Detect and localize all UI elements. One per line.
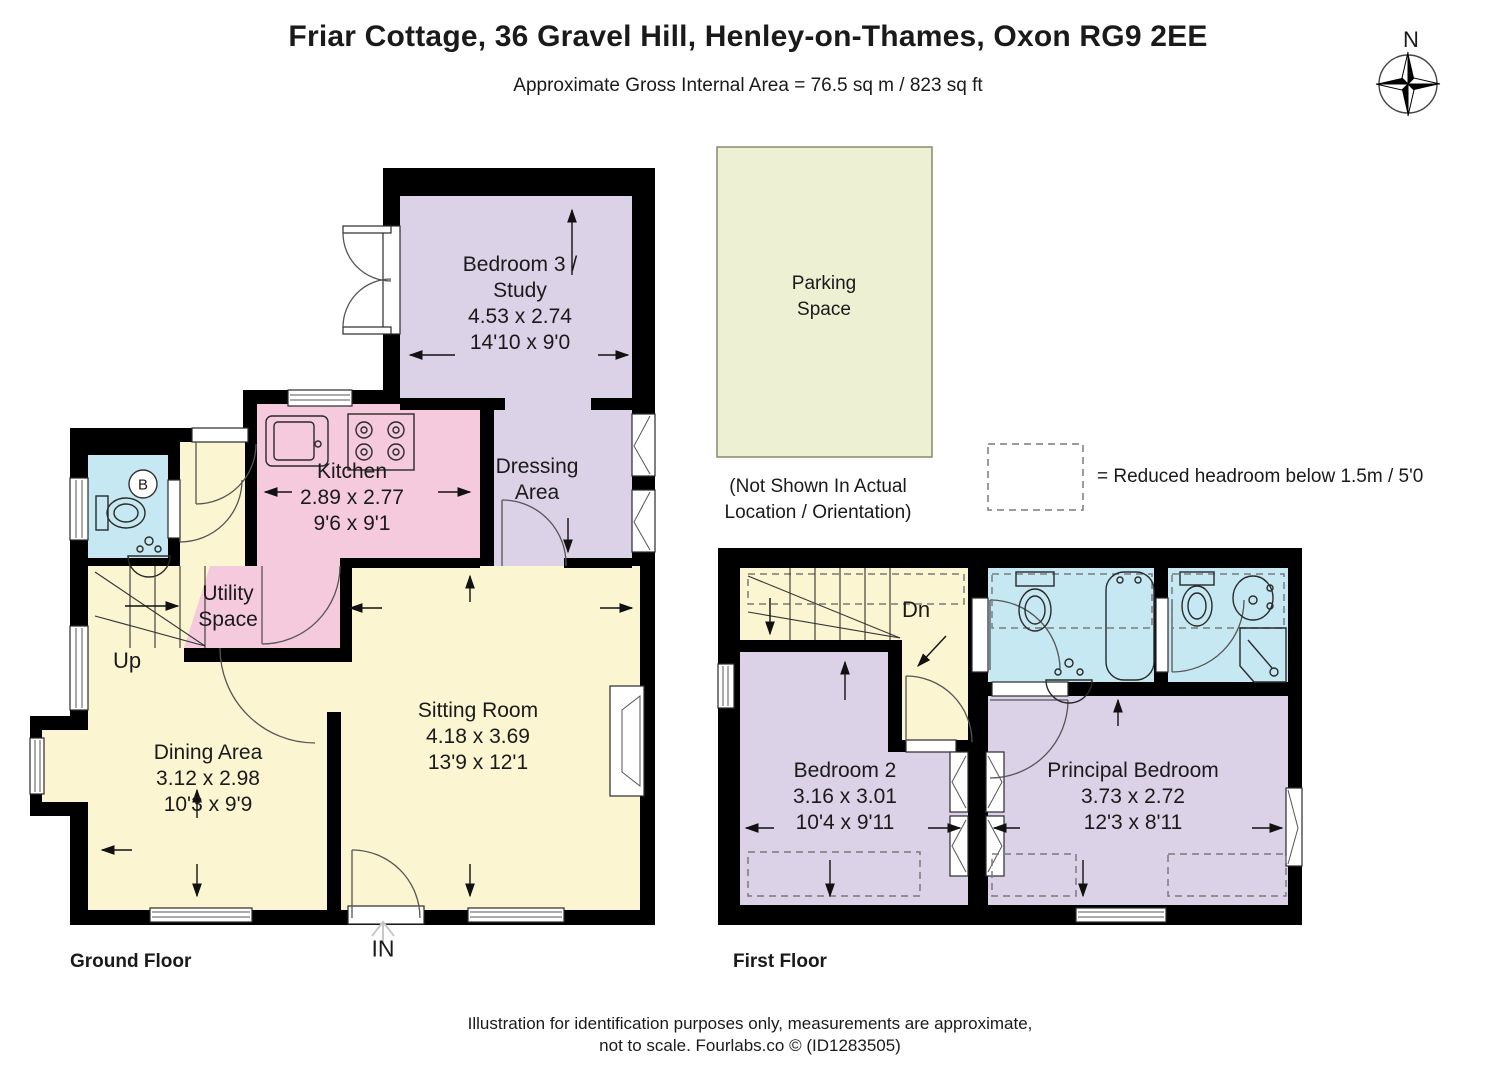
stairs-dn-label: Dn [902,597,930,623]
room-bathroom1 [988,568,1154,682]
principal-window [1076,908,1166,922]
fireplace [610,686,644,796]
entrance-door-gap [348,906,424,924]
room-label-kitchen: Kitchen 2.89 x 2.77 9'6 x 9'1 [300,459,404,537]
footer-disclaimer: Illustration for identification purposes… [468,1013,1033,1057]
dining-window [150,908,252,922]
dressing-window-2 [632,490,655,552]
parking-label: Parking Space [792,271,856,323]
boiler-label: B [138,477,148,494]
room-label-bedroom3: Bedroom 3 / Study 4.53 x 2.74 14'10 x 9'… [463,252,577,356]
room-bathroom-ground [88,455,168,558]
room-label-sitting: Sitting Room 4.18 x 3.69 13'9 x 12'1 [418,698,538,776]
dressing-window-1 [632,414,655,476]
room-label-dressing: Dressing Area [496,454,579,506]
ground-floor-label: Ground Floor [70,951,191,973]
first-left-window [718,664,734,708]
room-bedroom3-dressing-link [505,396,591,416]
floorplan-graphics [0,0,1495,1080]
room-label-principal: Principal Bedroom 3.73 x 2.72 12'3 x 8'1… [1047,758,1219,836]
sitting-window [468,908,564,922]
page-subtitle: Approximate Gross Internal Area = 76.5 s… [513,75,982,97]
legend-label: = Reduced headroom below 1.5m / 5'0 [1097,464,1423,490]
bathroom1-door-gap [972,598,988,672]
front-door-gap [192,428,248,442]
stairs-window [70,626,88,710]
bathroom2-door-gap [1156,598,1168,672]
parking-note: (Not Shown In Actual Location / Orientat… [725,474,912,526]
room-label-utility: Utility Space [198,581,258,633]
page-title: Friar Cottage, 36 Gravel Hill, Henley-on… [288,20,1207,54]
bay-window [30,738,44,794]
room-label-dining: Dining Area 3.12 x 2.98 10'3 x 9'9 [154,740,263,818]
compass-icon [1376,52,1440,116]
french-door-gap [383,226,400,334]
room-bay [42,730,88,802]
principal-door-gap [992,682,1068,696]
bathroom-window [70,478,88,540]
room-hall [180,442,245,566]
room-dining-sitting [88,566,640,910]
landing-door-gap [906,740,956,752]
bathroom-door-gap [168,480,180,538]
principal-right-door [1286,788,1302,866]
stairs-up-label: Up [113,648,141,674]
legend-swatch [988,444,1083,510]
first-floor-label: First Floor [733,951,827,973]
kitchen-window [288,390,352,406]
first-floor-plan [718,548,1302,925]
entrance-label: IN [372,936,395,963]
room-landing-column [902,640,968,740]
compass-north-label: N [1403,27,1419,53]
room-label-bedroom2: Bedroom 2 3.16 x 3.01 10'4 x 9'11 [793,758,897,836]
floorplan-page: Friar Cottage, 36 Gravel Hill, Henley-on… [0,0,1495,1080]
